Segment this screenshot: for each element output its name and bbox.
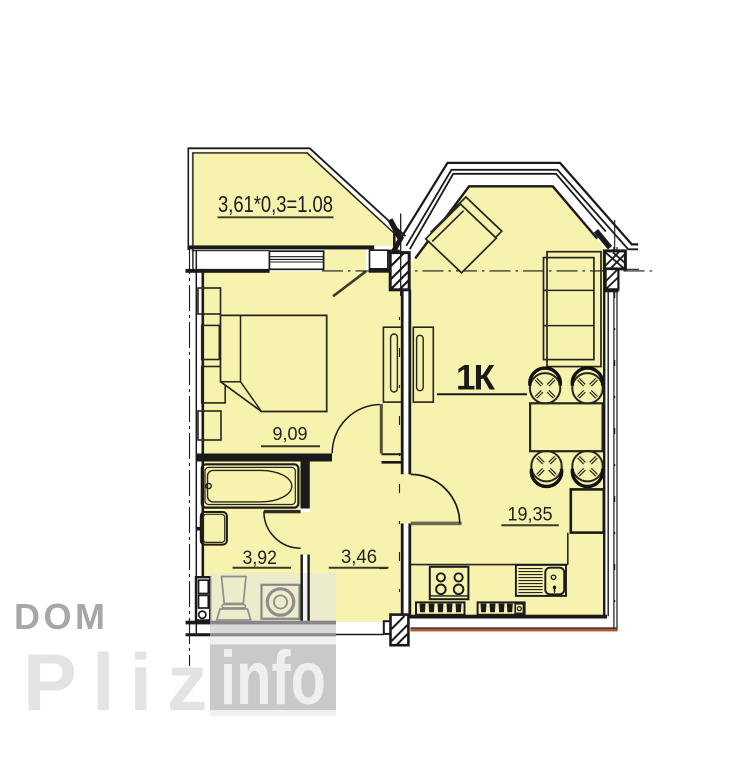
svg-text:19,35: 19,35: [508, 505, 553, 526]
svg-text:3,46: 3,46: [341, 546, 377, 568]
svg-text:1К: 1К: [456, 359, 496, 398]
svg-text:3,61*0,3=1.08: 3,61*0,3=1.08: [218, 191, 333, 217]
svg-text:Pliz: Pliz: [23, 638, 223, 728]
svg-text:info: info: [220, 636, 326, 721]
svg-text:9,09: 9,09: [273, 423, 308, 444]
svg-text:DOM: DOM: [14, 596, 109, 637]
svg-text:3,92: 3,92: [243, 548, 278, 569]
